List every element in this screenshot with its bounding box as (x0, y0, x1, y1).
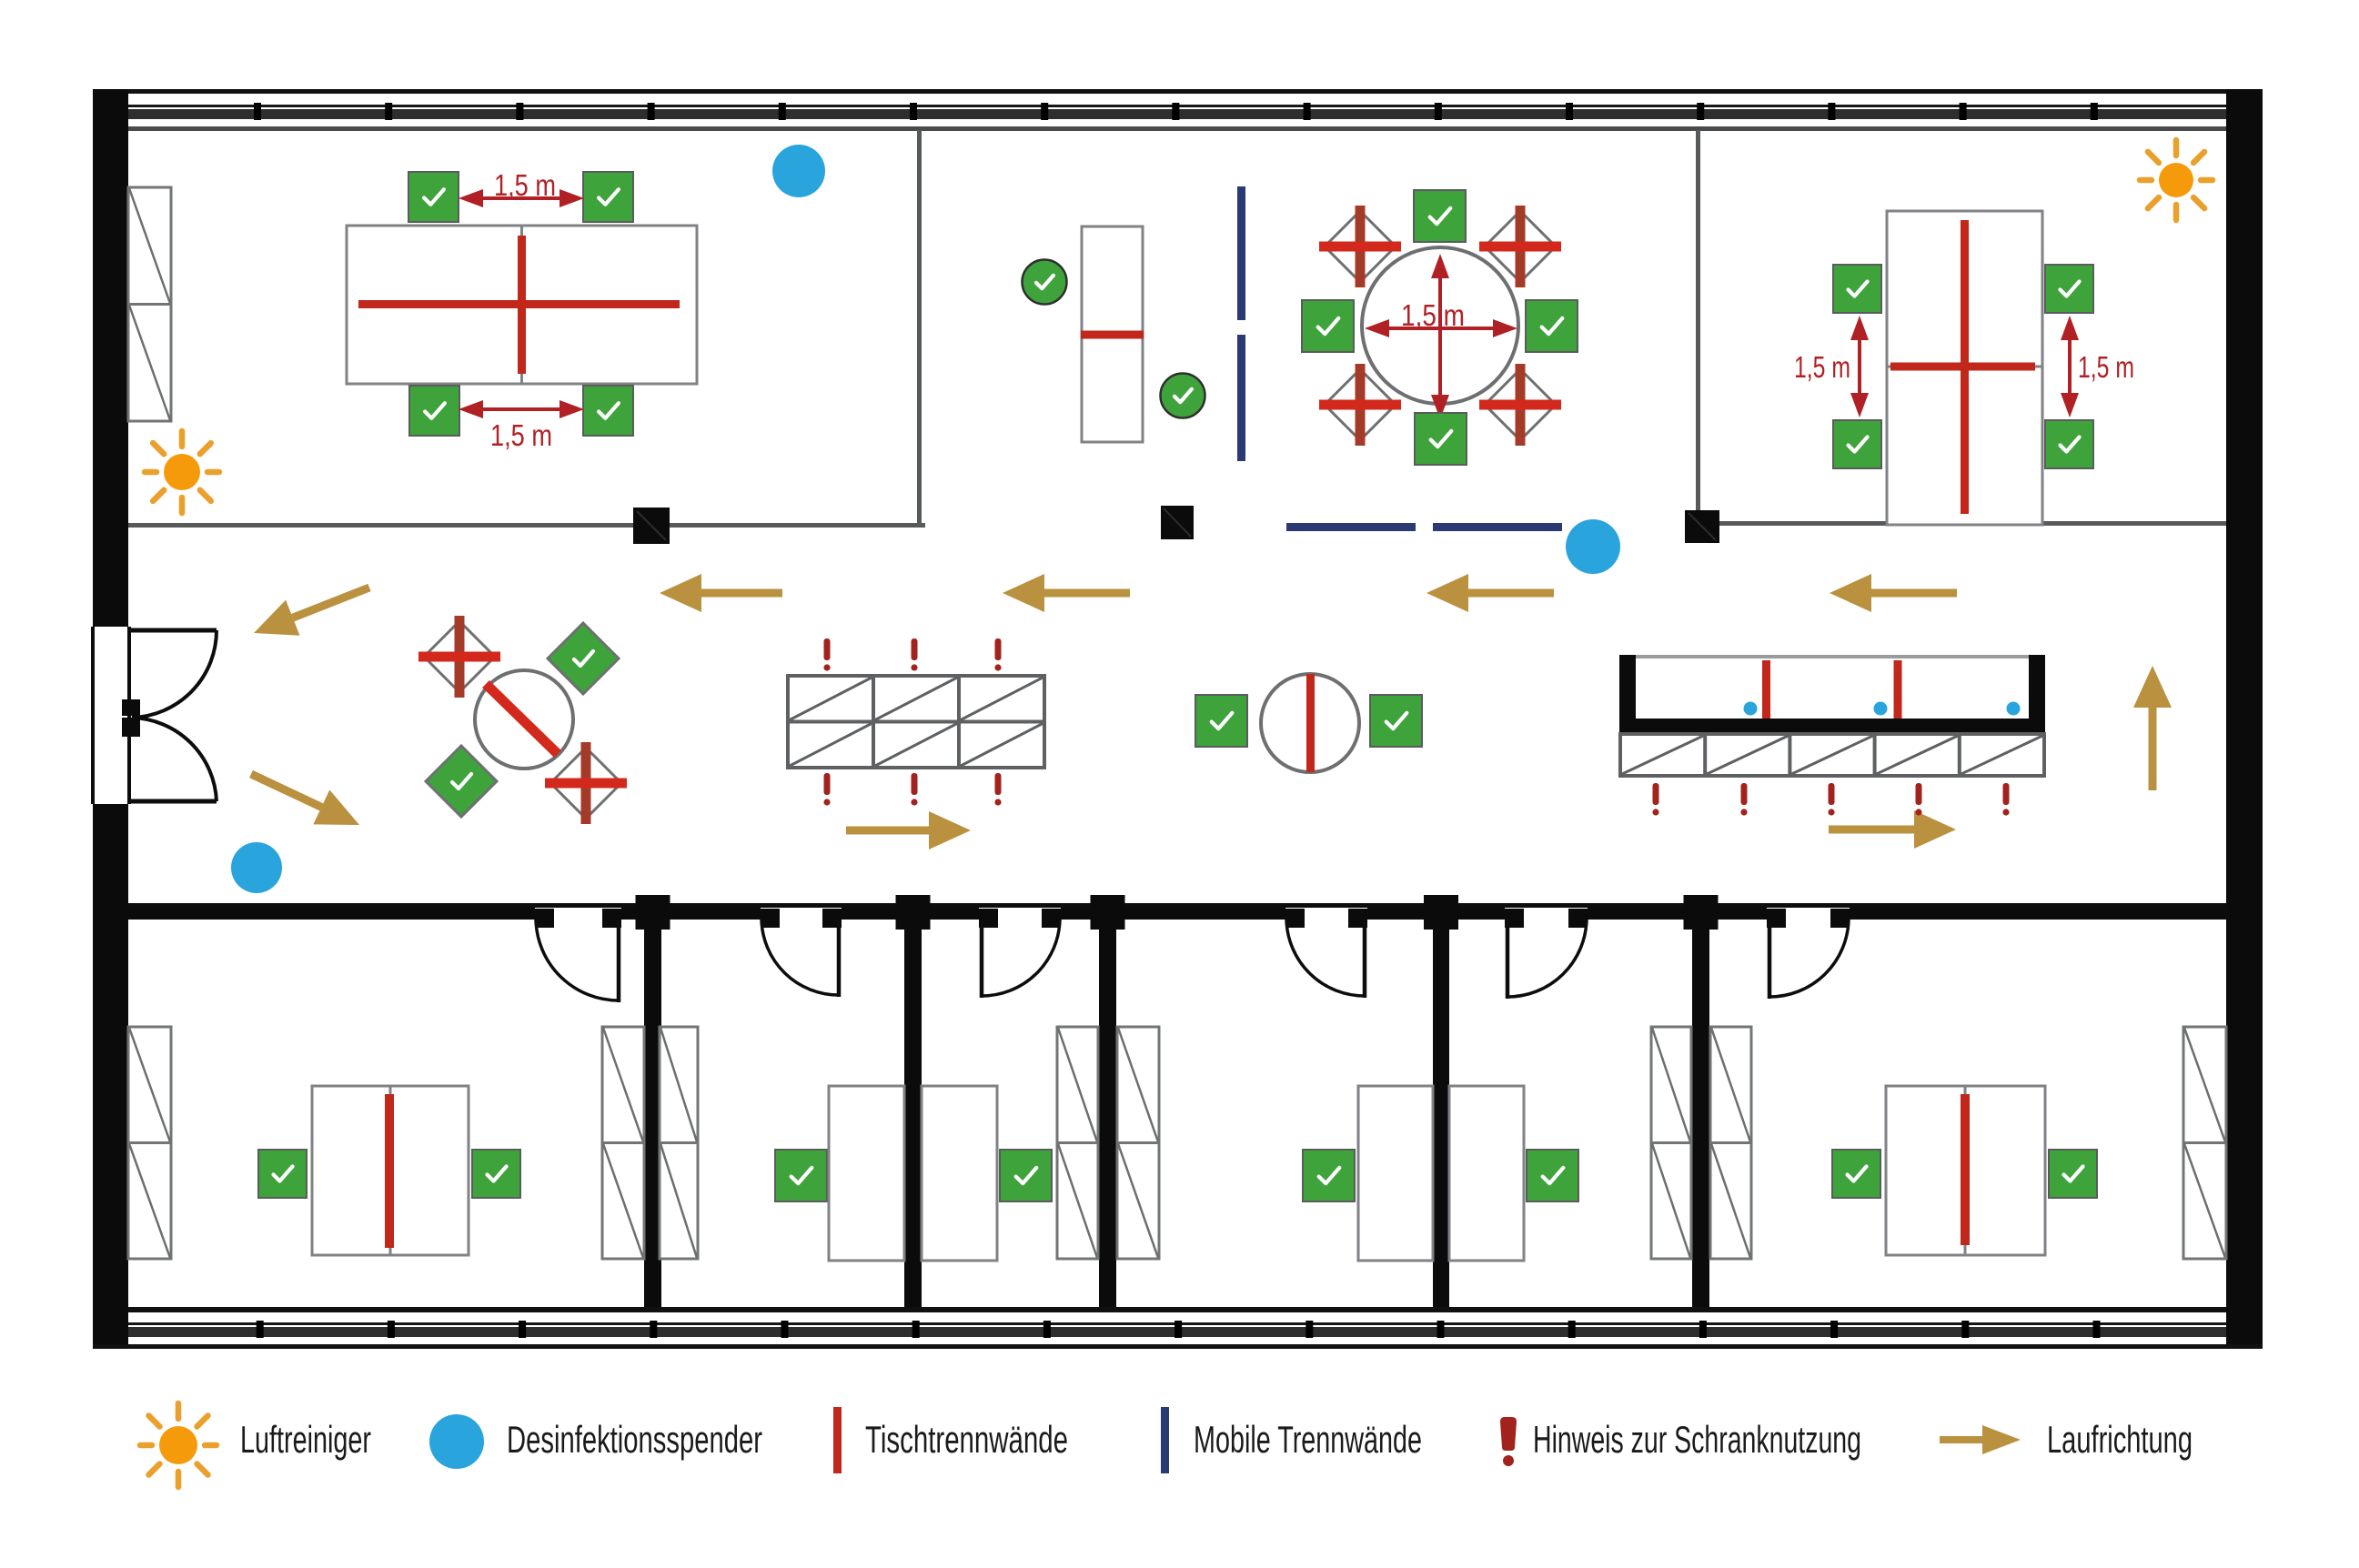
svg-text:1,5 m: 1,5 m (1401, 298, 1465, 332)
svg-text:Desinfektionsspender: Desinfektionsspender (507, 1418, 762, 1461)
svg-text:1,5 m: 1,5 m (494, 168, 556, 202)
svg-text:Laufrichtung: Laufrichtung (2047, 1418, 2193, 1461)
svg-text:Tischtrennwände: Tischtrennwände (865, 1418, 1068, 1461)
svg-text:Luftreiniger: Luftreiniger (240, 1418, 371, 1461)
svg-text:Mobile Trennwände: Mobile Trennwände (1194, 1418, 1422, 1461)
svg-text:1,5 m: 1,5 m (490, 418, 552, 452)
svg-text:Hinweis zur Schranknutzung: Hinweis zur Schranknutzung (1533, 1418, 1861, 1461)
svg-text:1,5 m: 1,5 m (2078, 350, 2134, 384)
svg-text:1,5 m: 1,5 m (1794, 350, 1850, 384)
